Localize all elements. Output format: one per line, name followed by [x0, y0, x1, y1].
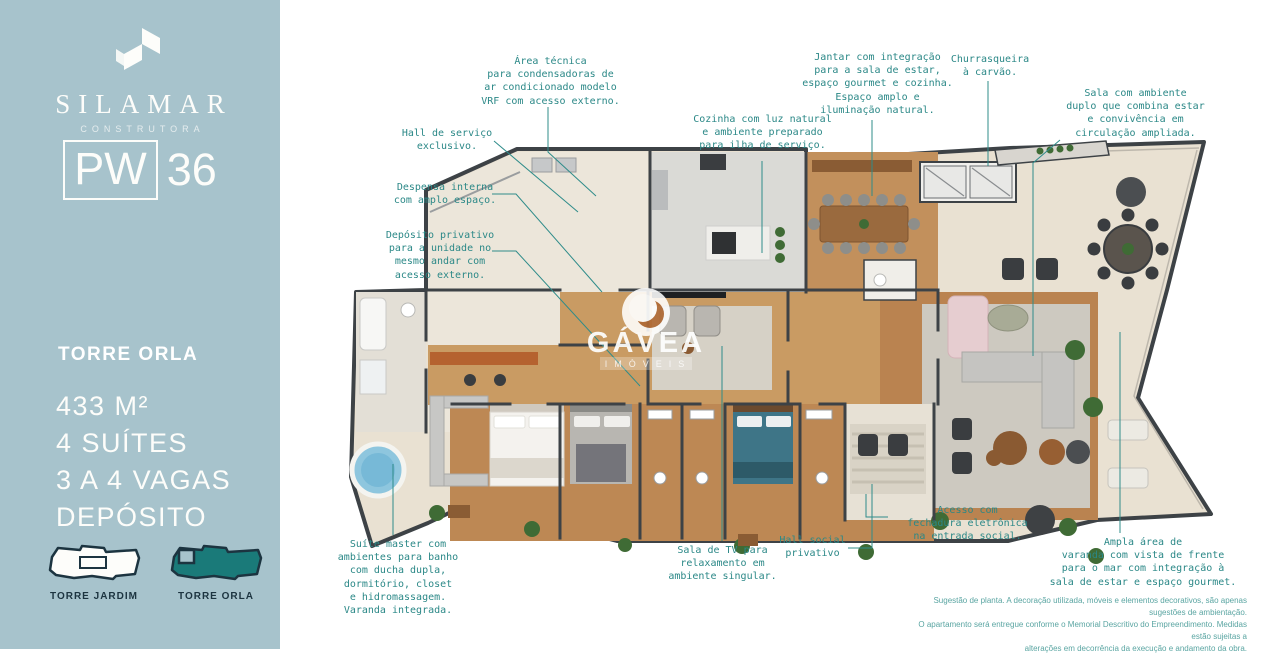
- annotation-acesso-fechadura: Acesso com fechadura eletrônica na entra…: [880, 504, 1055, 544]
- annotation-area-tecnica: Área técnica para condensadoras de ar co…: [463, 55, 638, 108]
- brand-logo: SILAMAR CONSTRUTORA: [0, 28, 280, 134]
- tower-jardim-footprint-icon: [46, 543, 142, 583]
- watermark-name: GÁVEA: [587, 325, 705, 359]
- floor-plan-panel: GÁVEA IMÓVEIS Área técnica para condensa…: [280, 0, 1280, 649]
- unit-number: PW 36: [0, 140, 280, 200]
- annotation-despensa: Despensa interna com amplo espaço.: [385, 181, 505, 207]
- watermark-subtitle: IMÓVEIS: [605, 359, 692, 369]
- spec-vagas: 3 A 4 VAGAS: [56, 462, 231, 499]
- bedroom3-bed: [733, 404, 793, 484]
- annotation-sala-ambiente-duplo: Sala com ambiente duplo que combina esta…: [1038, 87, 1233, 140]
- annotation-hall-servico: Hall de serviço exclusivo.: [392, 127, 502, 153]
- annotation-hall-social: Hall social privativo: [770, 534, 855, 560]
- tower-orla: TORRE ORLA: [168, 543, 264, 602]
- spec-deposito: DEPÓSITO: [56, 499, 231, 536]
- annotation-churrasqueira: Churrasqueira à carvão.: [935, 53, 1045, 79]
- tower-legend: TORRE JARDIM TORRE ORLA: [46, 543, 264, 602]
- brand-subtitle: CONSTRUTORA: [0, 124, 280, 134]
- tower-orla-footprint-icon: [168, 543, 264, 583]
- sidebar: SILAMAR CONSTRUTORA PW 36 TORRE ORLA 433…: [0, 0, 280, 649]
- annotation-cozinha: Cozinha com luz natural e ambiente prepa…: [670, 113, 855, 153]
- unit-specs: 433 M² 4 SUÍTES 3 A 4 VAGAS DEPÓSITO: [56, 388, 231, 536]
- tower-jardim: TORRE JARDIM: [46, 543, 142, 602]
- spec-suites: 4 SUÍTES: [56, 425, 231, 462]
- tower-title: TORRE ORLA: [58, 344, 198, 366]
- annotation-suite-master: Suíte master com ambientes para banho co…: [323, 538, 473, 617]
- tower-orla-label: TORRE ORLA: [168, 591, 264, 602]
- bedroom2-bed: [570, 404, 632, 484]
- annotation-deposito: Depósito privativo para a unidade no mes…: [380, 229, 500, 282]
- annotation-ampla-varanda: Ampla área de varanda com vista de frent…: [1043, 536, 1243, 589]
- unit-value: 36: [167, 144, 217, 196]
- unit-prefix: PW: [63, 140, 158, 200]
- disclaimer-text: Sugestão de planta. A decoração utilizad…: [902, 595, 1247, 655]
- tower-jardim-label: TORRE JARDIM: [46, 591, 142, 602]
- brand-name: SILAMAR: [0, 89, 280, 120]
- spec-area: 433 M²: [56, 388, 231, 425]
- silamar-logo-icon: [100, 28, 180, 76]
